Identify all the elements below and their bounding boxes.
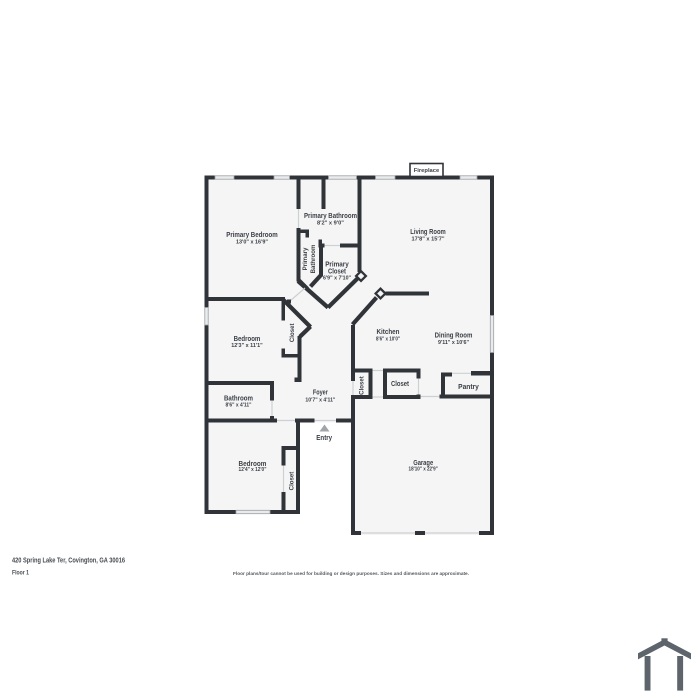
svg-text:420 Spring Lake Ter, Covington: 420 Spring Lake Ter, Covington, GA 30016 [12, 556, 125, 565]
svg-text:9'11" x 10'6": 9'11" x 10'6" [438, 340, 469, 346]
svg-text:Closet: Closet [359, 376, 366, 395]
svg-text:Primary Bedroom: Primary Bedroom [226, 230, 278, 239]
svg-text:Closet: Closet [289, 472, 296, 491]
svg-text:Living Room: Living Room [410, 227, 446, 236]
svg-text:8'6" x 10'0": 8'6" x 10'0" [376, 337, 400, 343]
svg-text:13'0" x 16'9": 13'0" x 16'9" [236, 239, 268, 245]
svg-text:Fireplace: Fireplace [414, 168, 440, 174]
svg-text:Bathroom: Bathroom [310, 244, 317, 273]
svg-text:Primary Bathroom: Primary Bathroom [304, 211, 357, 220]
svg-text:Closet: Closet [391, 379, 409, 388]
svg-text:Kitchen: Kitchen [377, 327, 400, 336]
svg-text:8'6" x 4'11": 8'6" x 4'11" [226, 402, 252, 408]
svg-text:Primary: Primary [302, 247, 309, 270]
svg-text:17'8" x 15'7": 17'8" x 15'7" [412, 236, 446, 242]
svg-text:12'4" x 12'0": 12'4" x 12'0" [239, 467, 267, 473]
svg-text:Dining Room: Dining Room [435, 331, 473, 340]
svg-text:Pantry: Pantry [458, 382, 479, 391]
svg-text:Foyer: Foyer [313, 388, 328, 397]
svg-text:Closet: Closet [289, 323, 296, 342]
svg-text:Bedroom: Bedroom [234, 334, 261, 343]
svg-text:Bathroom: Bathroom [224, 393, 253, 402]
svg-text:Entry: Entry [316, 433, 332, 442]
svg-text:6'9" x 7'10": 6'9" x 7'10" [323, 276, 351, 282]
svg-text:8'2" x 9'0": 8'2" x 9'0" [317, 221, 345, 227]
svg-text:10'7" x 4'11": 10'7" x 4'11" [305, 397, 335, 403]
svg-text:12'3" x 11'1": 12'3" x 11'1" [231, 343, 263, 349]
svg-text:18'10" x 22'9": 18'10" x 22'9" [409, 466, 439, 472]
svg-text:Floor 1: Floor 1 [12, 570, 29, 577]
svg-text:Closet: Closet [328, 267, 346, 276]
svg-text:Floor plans/tour cannot be use: Floor plans/tour cannot be used for buil… [233, 571, 469, 576]
